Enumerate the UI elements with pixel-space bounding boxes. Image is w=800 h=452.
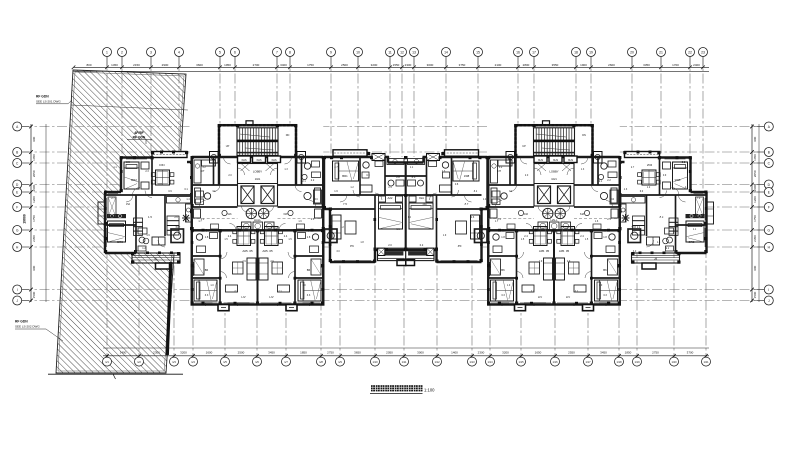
svg-text:3550: 3550 [552, 63, 559, 67]
svg-text:2300: 2300 [478, 350, 485, 354]
svg-text:E: E [768, 191, 770, 195]
svg-text:1/13: 1/13 [469, 360, 475, 364]
svg-text:2050: 2050 [753, 170, 757, 177]
svg-text:1/8: 1/8 [319, 360, 323, 364]
svg-text:15A: 15A [422, 203, 427, 206]
svg-text:13: 13 [412, 51, 416, 55]
svg-text:1/10: 1/10 [372, 360, 378, 364]
svg-text:1450: 1450 [753, 154, 757, 161]
svg-text:1500: 1500 [32, 291, 36, 298]
svg-text:1850: 1850 [625, 350, 632, 354]
svg-text:1/4: 1/4 [191, 360, 195, 364]
svg-text:1/15: 1/15 [518, 360, 524, 364]
svg-text:2900: 2900 [162, 63, 169, 67]
svg-text:SEE LS-201 DWG: SEE LS-201 DWG [36, 100, 61, 104]
svg-text:900: 900 [32, 265, 36, 270]
svg-text:14: 14 [444, 51, 448, 55]
svg-text:3200: 3200 [371, 63, 378, 67]
svg-text:2500: 2500 [341, 63, 348, 67]
svg-text:3200: 3200 [180, 350, 187, 354]
svg-text:1/6: 1/6 [255, 360, 259, 364]
svg-text:15A: 15A [126, 203, 131, 206]
svg-text:1500: 1500 [753, 291, 757, 298]
svg-text:2350: 2350 [753, 235, 757, 242]
svg-text:9: 9 [330, 51, 332, 55]
svg-text:19: 19 [589, 51, 593, 55]
svg-text:1/1: 1/1 [105, 360, 109, 364]
svg-text:800: 800 [86, 63, 91, 67]
svg-text:E: E [16, 191, 18, 195]
svg-text:1/7: 1/7 [284, 360, 288, 364]
svg-text:900: 900 [32, 136, 36, 141]
svg-text:B: B [16, 151, 18, 155]
svg-text:1/19: 1/19 [634, 360, 640, 364]
svg-text:23: 23 [701, 51, 705, 55]
svg-text:22: 22 [688, 51, 692, 55]
svg-text:1/17: 1/17 [585, 360, 591, 364]
svg-text:1/2: 1/2 [137, 360, 141, 364]
svg-text:10: 10 [356, 51, 360, 55]
svg-text:2400: 2400 [693, 63, 700, 67]
svg-text:1/11: 1/11 [402, 360, 407, 364]
svg-text:20: 20 [630, 51, 634, 55]
svg-text:2600: 2600 [753, 185, 757, 192]
svg-text:1700: 1700 [672, 63, 679, 67]
svg-text:3600: 3600 [196, 63, 203, 67]
svg-text:1750: 1750 [753, 215, 757, 222]
svg-text:I: I [768, 288, 769, 292]
svg-text:1/9: 1/9 [338, 360, 342, 364]
svg-text:1/3: 1/3 [172, 360, 176, 364]
svg-text:1200: 1200 [753, 196, 757, 203]
svg-text:2150: 2150 [133, 63, 140, 67]
svg-text:8: 8 [289, 51, 291, 55]
svg-text:3450: 3450 [600, 350, 607, 354]
svg-text:7: 7 [276, 51, 278, 55]
svg-text:15: 15 [476, 51, 480, 55]
svg-text:2100: 2100 [495, 63, 502, 67]
svg-text:3750: 3750 [459, 63, 466, 67]
svg-text:3400: 3400 [280, 63, 287, 67]
svg-text:1400: 1400 [120, 350, 127, 354]
svg-text:2800: 2800 [523, 63, 530, 67]
svg-text:11: 11 [388, 51, 392, 55]
svg-text:3650: 3650 [354, 350, 361, 354]
svg-text:1850: 1850 [300, 350, 307, 354]
svg-text:2600: 2600 [32, 185, 36, 192]
svg-text:I: I [17, 288, 18, 292]
svg-text:1750: 1750 [32, 215, 36, 222]
svg-text:1200: 1200 [32, 196, 36, 203]
svg-text:1: 1 [106, 51, 108, 55]
svg-text:1600: 1600 [206, 350, 213, 354]
svg-text:2050: 2050 [32, 170, 36, 177]
svg-text:F: F [768, 206, 770, 210]
svg-text:3000: 3000 [417, 350, 424, 354]
svg-text:19600: 19600 [23, 214, 27, 224]
svg-text:2750: 2750 [327, 350, 334, 354]
svg-text:2300: 2300 [405, 63, 412, 67]
svg-text:3000: 3000 [427, 63, 434, 67]
svg-text:1/5: 1/5 [223, 360, 227, 364]
svg-text:SEE LS-202 DWG: SEE LS-202 DWG [15, 325, 40, 329]
svg-text:2: 2 [121, 51, 123, 55]
svg-text:1/18: 1/18 [616, 360, 622, 364]
svg-text:1450: 1450 [32, 154, 36, 161]
svg-text:1/12: 1/12 [434, 360, 440, 364]
svg-text:2350: 2350 [32, 235, 36, 242]
svg-text:18: 18 [574, 51, 578, 55]
svg-text:900: 900 [753, 136, 757, 141]
svg-text:5: 5 [219, 51, 221, 55]
svg-text:1450: 1450 [111, 63, 118, 67]
svg-text:1:100: 1:100 [424, 388, 435, 393]
svg-text:1/20: 1/20 [671, 360, 677, 364]
svg-text:2700: 2700 [253, 63, 260, 67]
svg-text:1950: 1950 [224, 63, 231, 67]
svg-text:17: 17 [532, 51, 536, 55]
svg-text:RF GDN: RF GDN [15, 320, 28, 324]
svg-text:B: B [768, 151, 770, 155]
svg-text:RF GDN: RF GDN [133, 135, 146, 139]
svg-text:21: 21 [659, 51, 663, 55]
svg-text:1750: 1750 [307, 63, 314, 67]
svg-text:RF GDN: RF GDN [36, 95, 49, 99]
svg-text:16: 16 [516, 51, 520, 55]
svg-text:1/16: 1/16 [552, 360, 558, 364]
svg-text:900: 900 [753, 265, 757, 270]
svg-text:6: 6 [234, 51, 236, 55]
svg-text:1650: 1650 [535, 350, 542, 354]
svg-text:4: 4 [178, 51, 180, 55]
svg-text:1/21: 1/21 [703, 360, 709, 364]
svg-text:3450: 3450 [268, 350, 275, 354]
svg-text:2500: 2500 [238, 350, 245, 354]
svg-text:2050: 2050 [386, 350, 393, 354]
svg-text:12: 12 [400, 51, 404, 55]
svg-text:1550: 1550 [393, 63, 400, 67]
svg-text:2600: 2600 [608, 63, 615, 67]
svg-text:2550: 2550 [568, 350, 575, 354]
svg-text:1400: 1400 [451, 350, 458, 354]
svg-text:3200: 3200 [502, 350, 509, 354]
svg-text:2750: 2750 [652, 350, 659, 354]
svg-text:2300: 2300 [153, 350, 160, 354]
svg-text:1900: 1900 [580, 63, 587, 67]
svg-text:3700: 3700 [687, 350, 694, 354]
svg-text:3350: 3350 [643, 63, 650, 67]
svg-text:3: 3 [150, 51, 152, 55]
svg-text:F: F [16, 206, 18, 210]
svg-text:1/14: 1/14 [487, 360, 493, 364]
